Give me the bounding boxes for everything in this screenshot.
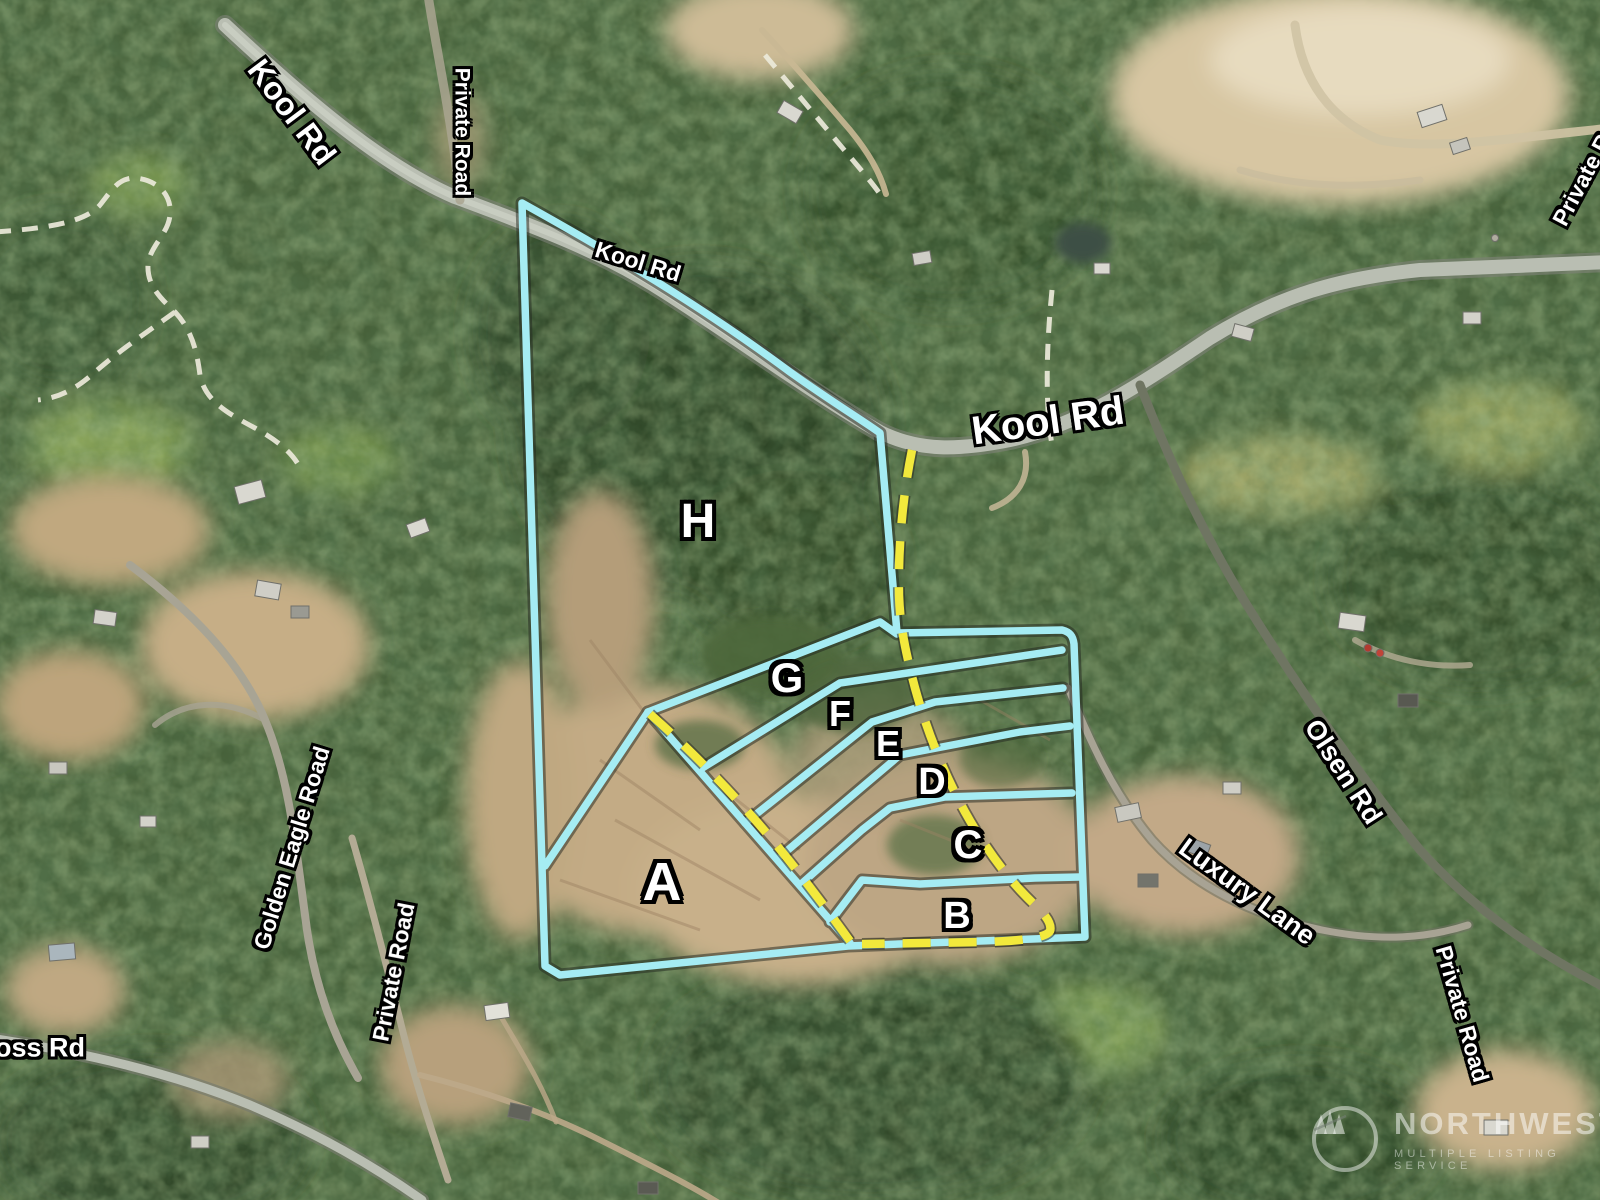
pond [1055, 223, 1111, 263]
aerial-map: Kool Rd Private Road Kool Rd Kool Rd Pri… [0, 0, 1600, 1200]
mls-watermark-text: NORTHWEST MULTIPLE LISTING SERVICE [1394, 1106, 1600, 1172]
road-label-ross-rd: oss Rd [0, 1035, 85, 1062]
three-pines-icon [1312, 1106, 1348, 1138]
mls-watermark: NORTHWEST MULTIPLE LISTING SERVICE [1312, 1106, 1600, 1172]
mls-logo-circle [1312, 1106, 1378, 1172]
road-label-private-road-topleft: Private Road [452, 68, 473, 196]
lot-label-g: G [771, 657, 804, 699]
mls-tagline: MULTIPLE LISTING SERVICE [1394, 1148, 1600, 1172]
lot-label-d: D [918, 763, 945, 801]
terrain-base [0, 0, 1600, 1200]
mls-name: NORTHWEST [1394, 1106, 1600, 1142]
lot-label-f: F [829, 696, 851, 732]
lot-label-h: H [681, 498, 716, 546]
lot-label-b: B [943, 897, 970, 935]
satellite-imagery [0, 0, 1600, 1200]
lot-label-e: E [876, 726, 900, 762]
lot-label-c: C [954, 825, 983, 865]
lot-label-a: A [643, 855, 682, 909]
